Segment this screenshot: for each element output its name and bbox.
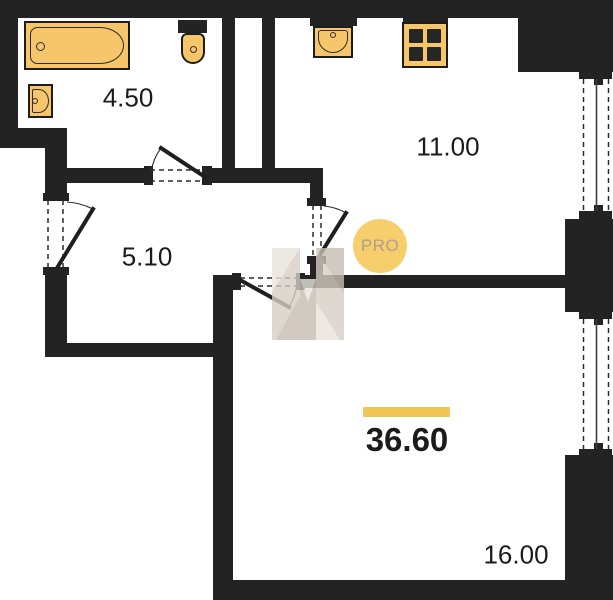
window-2 bbox=[584, 319, 609, 449]
stove-icon bbox=[402, 22, 448, 68]
total-area-accent-bar bbox=[363, 407, 450, 417]
wall-right-bottom bbox=[565, 455, 613, 600]
wall-bathroom-bottom-left bbox=[63, 168, 150, 183]
bathtub-drain bbox=[36, 42, 45, 51]
wall-shaft-left bbox=[222, 18, 235, 170]
wall-corner-top-right bbox=[518, 0, 613, 72]
stove-burner bbox=[427, 47, 441, 61]
wall-hallway-bottom bbox=[45, 343, 233, 357]
window-1 bbox=[584, 79, 609, 211]
wall-bathroom-bottom-right bbox=[205, 168, 323, 183]
window2-sill-top bbox=[579, 311, 612, 319]
bathroom-area-label: 4.50 bbox=[103, 83, 154, 114]
window1-sill-top bbox=[579, 71, 612, 79]
h-logo-facet bbox=[276, 296, 300, 340]
wall-left-upper bbox=[0, 0, 18, 148]
door-leaf bbox=[57, 209, 93, 268]
door-swing-arc bbox=[324, 206, 346, 213]
floor-plan: PRO 4.50 11.00 5.10 16.00 36.60 bbox=[0, 0, 613, 600]
toilet-tank bbox=[178, 20, 207, 33]
jamb-living-left bbox=[232, 273, 241, 290]
toilet-icon bbox=[181, 33, 205, 64]
living-room-door bbox=[240, 278, 298, 307]
window1-tick-top bbox=[594, 79, 603, 85]
kitchen-counter-sink bbox=[310, 18, 357, 26]
living-room-area-label: 16.00 bbox=[483, 540, 548, 571]
stove-burners bbox=[409, 29, 441, 61]
stove-burner bbox=[409, 29, 423, 43]
wall-divider-right bbox=[298, 275, 565, 288]
stove-burner bbox=[409, 47, 423, 61]
bathtub-icon bbox=[24, 21, 130, 70]
window1-sill-bottom bbox=[579, 211, 612, 219]
jamb-bathroom-right bbox=[202, 166, 212, 185]
h-logo-left-bar bbox=[272, 248, 300, 340]
jamb-entry-top bbox=[43, 193, 69, 201]
kitchen-counter-stove bbox=[403, 15, 448, 22]
wall-kitchen-hall-lower bbox=[310, 262, 323, 276]
h-logo-facet bbox=[316, 302, 340, 340]
window2-sill-bottom bbox=[579, 449, 612, 457]
door-swing-arc bbox=[67, 202, 93, 209]
pro-badge: PRO bbox=[353, 219, 407, 273]
toilet-drain bbox=[190, 46, 197, 53]
window2-tick-bottom bbox=[594, 443, 603, 449]
wall-living-left bbox=[213, 275, 233, 600]
linework-overlay bbox=[0, 0, 613, 600]
sink-icon bbox=[28, 84, 53, 118]
pro-badge-label: PRO bbox=[361, 236, 399, 256]
door-leaf bbox=[318, 213, 346, 258]
window2-tick-top bbox=[594, 319, 603, 325]
sink-drain bbox=[32, 98, 38, 104]
hallway-area-label: 5.10 bbox=[122, 242, 173, 273]
wall-entry-upper bbox=[45, 128, 67, 200]
jamb-kitchen-bottom bbox=[307, 256, 326, 264]
bathroom-door bbox=[150, 148, 205, 181]
entrance-door bbox=[48, 200, 93, 268]
kitchen-sink-drain bbox=[330, 32, 336, 38]
jamb-entry-bottom bbox=[43, 267, 69, 275]
kitchen-sink-icon bbox=[313, 26, 353, 58]
wall-bottom bbox=[213, 580, 613, 600]
kitchen-door bbox=[313, 205, 346, 258]
window1-tick-bottom bbox=[594, 205, 603, 211]
door-leaf bbox=[161, 148, 205, 177]
jamb-kitchen-top bbox=[307, 198, 326, 206]
jamb-bathroom-left bbox=[144, 166, 153, 185]
door-leaf bbox=[240, 280, 289, 307]
stove-burner bbox=[427, 29, 441, 43]
wall-shaft-right bbox=[262, 18, 275, 170]
wall-window-pier bbox=[565, 219, 613, 312]
total-area-label: 36.60 bbox=[366, 421, 449, 459]
kitchen-area-label: 11.00 bbox=[416, 132, 479, 163]
jamb-living-right bbox=[296, 273, 305, 290]
